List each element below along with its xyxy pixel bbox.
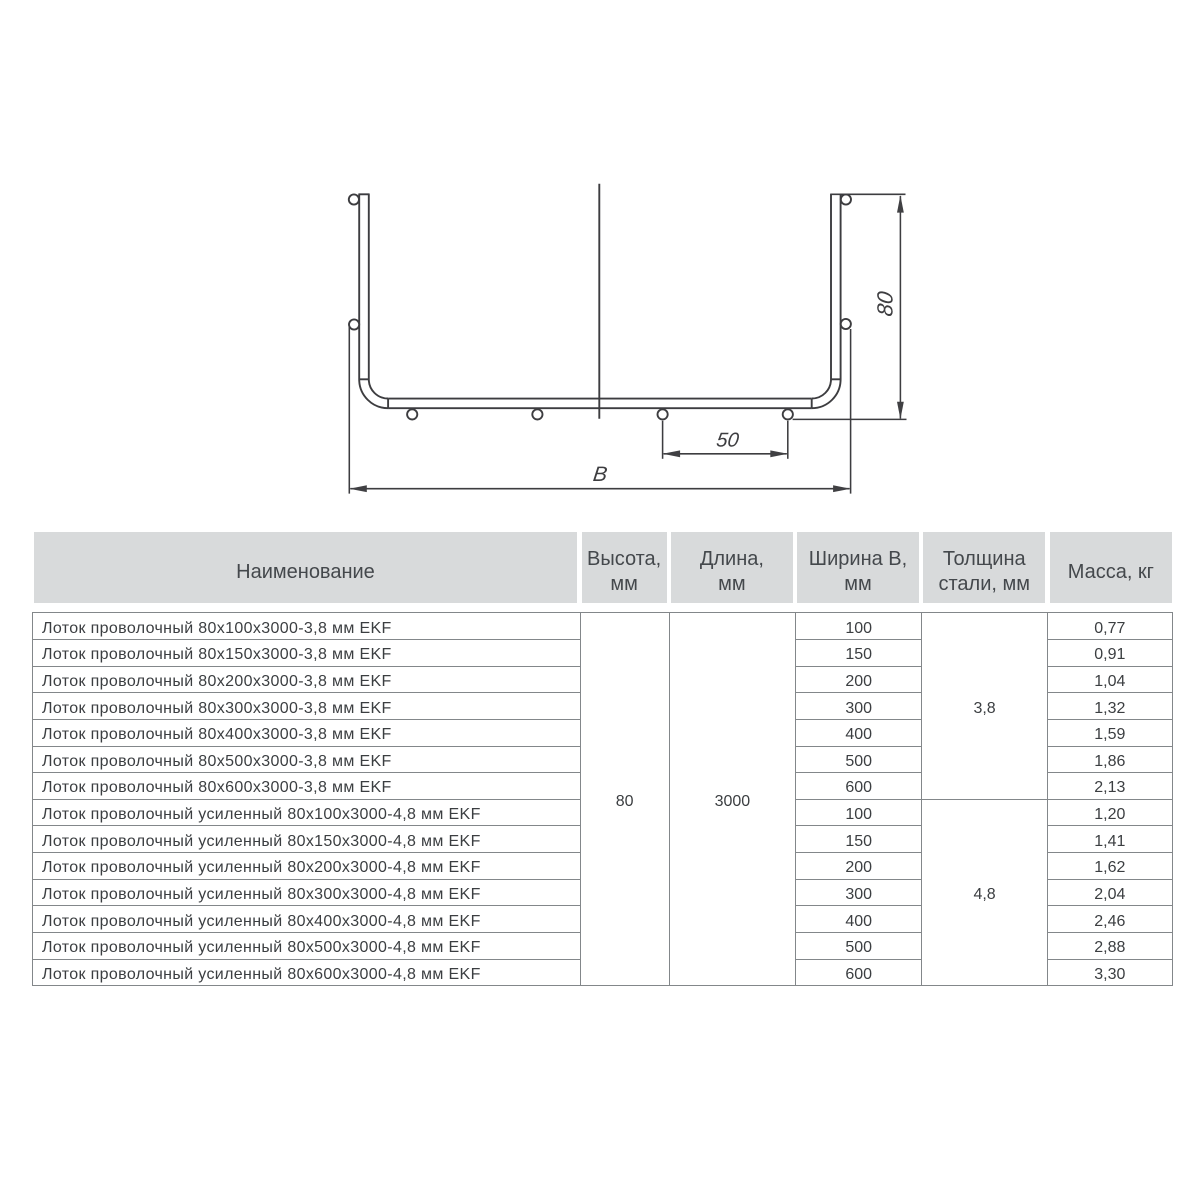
svg-text:80: 80 — [872, 289, 897, 317]
svg-text:В: В — [592, 463, 609, 486]
svg-text:50: 50 — [715, 429, 740, 451]
